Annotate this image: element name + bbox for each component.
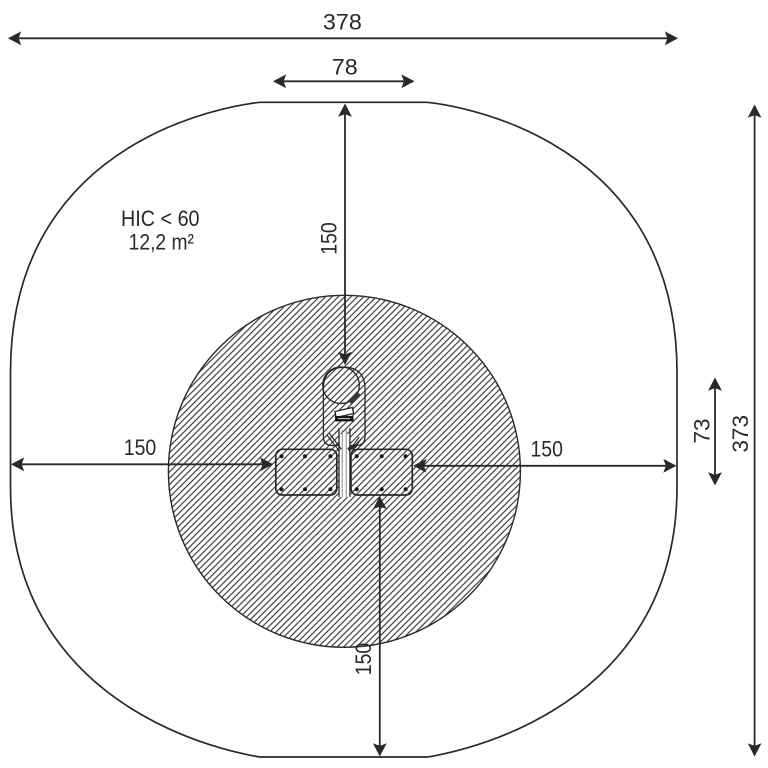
svg-text:HIC < 60: HIC < 60 (121, 206, 200, 231)
svg-text:150: 150 (351, 643, 376, 676)
svg-text:150: 150 (317, 222, 342, 255)
svg-text:373: 373 (728, 415, 753, 453)
svg-text:150: 150 (124, 435, 157, 460)
svg-text:12,2 m²: 12,2 m² (129, 230, 194, 255)
svg-text:150: 150 (530, 437, 563, 462)
svg-text:78: 78 (332, 55, 358, 80)
svg-text:73: 73 (689, 419, 714, 444)
svg-text:378: 378 (323, 10, 362, 35)
